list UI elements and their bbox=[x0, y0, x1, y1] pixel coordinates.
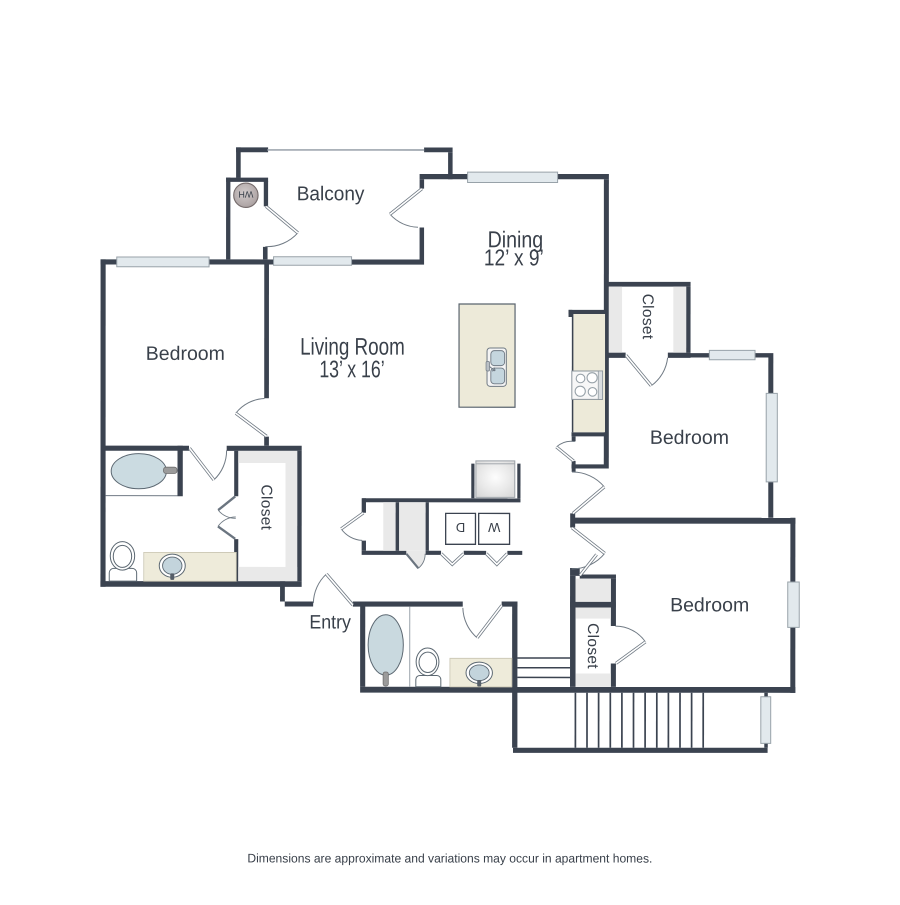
svg-text:12’ x 9’: 12’ x 9’ bbox=[484, 244, 544, 270]
svg-text:W: W bbox=[487, 520, 500, 535]
svg-text:Closet: Closet bbox=[639, 294, 656, 340]
svg-text:Dimensions are approximate and: Dimensions are approximate and variation… bbox=[247, 851, 652, 865]
svg-text:Bedroom: Bedroom bbox=[670, 594, 749, 616]
svg-text:Closet: Closet bbox=[584, 623, 601, 669]
svg-text:Bedroom: Bedroom bbox=[650, 427, 729, 449]
svg-text:Entry: Entry bbox=[309, 612, 351, 634]
svg-text:13’ x 16’: 13’ x 16’ bbox=[319, 356, 384, 383]
svg-text:Closet: Closet bbox=[257, 485, 274, 531]
svg-text:Balcony: Balcony bbox=[297, 183, 365, 205]
svg-text:WH: WH bbox=[238, 189, 253, 199]
svg-text:D: D bbox=[456, 520, 465, 535]
svg-text:Bedroom: Bedroom bbox=[146, 343, 225, 365]
